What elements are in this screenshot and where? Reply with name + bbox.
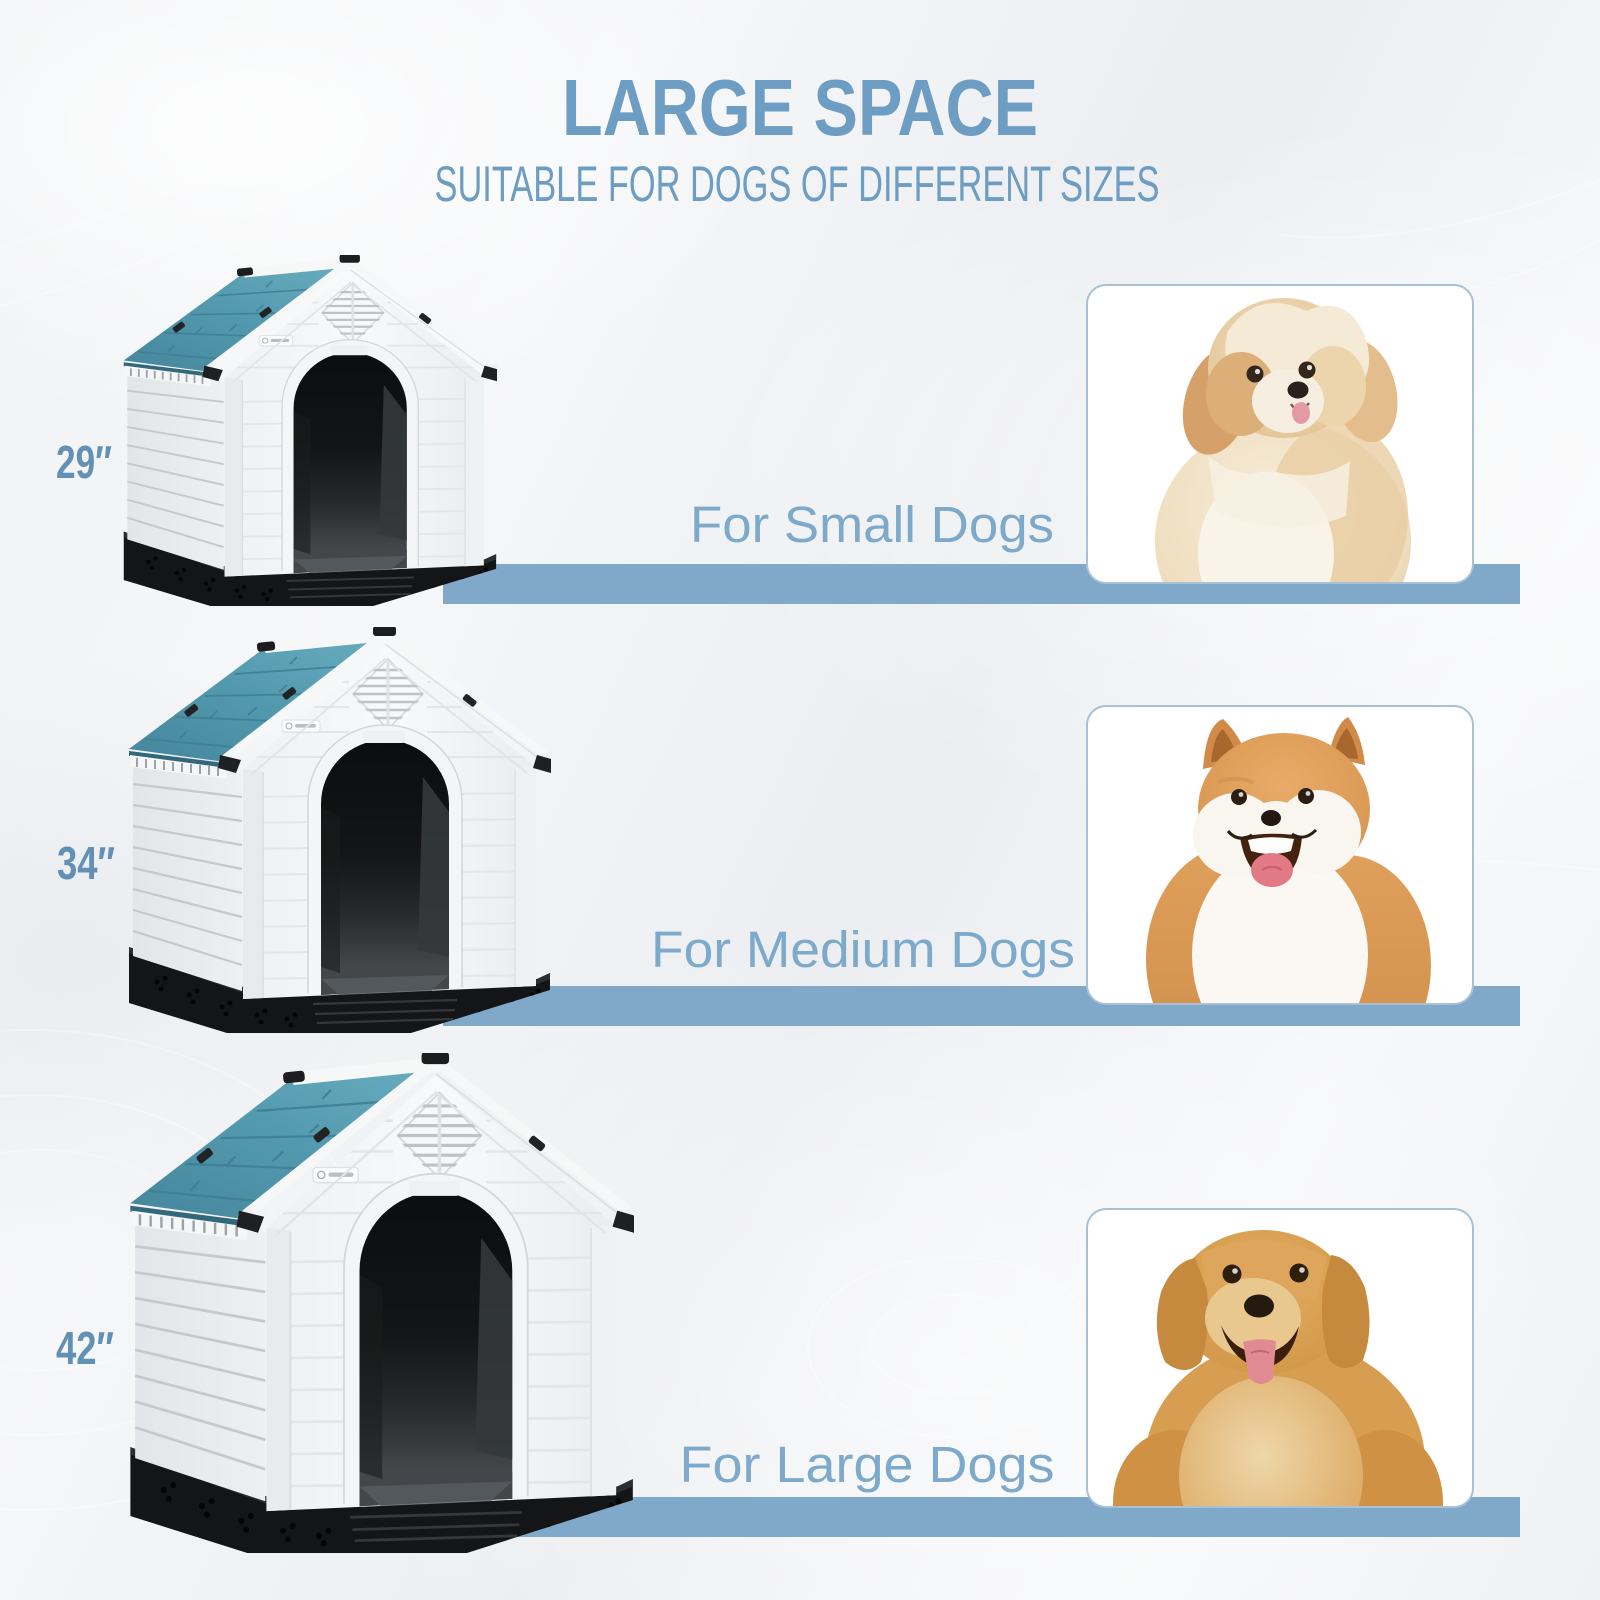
svg-text:LARGE SPACE: LARGE SPACE	[562, 63, 1038, 152]
svg-text:42″: 42″	[56, 1322, 114, 1374]
svg-text:For Small Dogs: For Small Dogs	[690, 496, 1054, 553]
svg-text:For Medium Dogs: For Medium Dogs	[651, 921, 1075, 978]
svg-text:For Large Dogs: For Large Dogs	[680, 1436, 1055, 1493]
svg-text:34″: 34″	[57, 837, 115, 889]
svg-text:29″: 29″	[56, 436, 112, 488]
svg-text:SUITABLE FOR DOGS OF DIFFERENT: SUITABLE FOR DOGS OF DIFFERENT SIZES	[435, 156, 1160, 212]
